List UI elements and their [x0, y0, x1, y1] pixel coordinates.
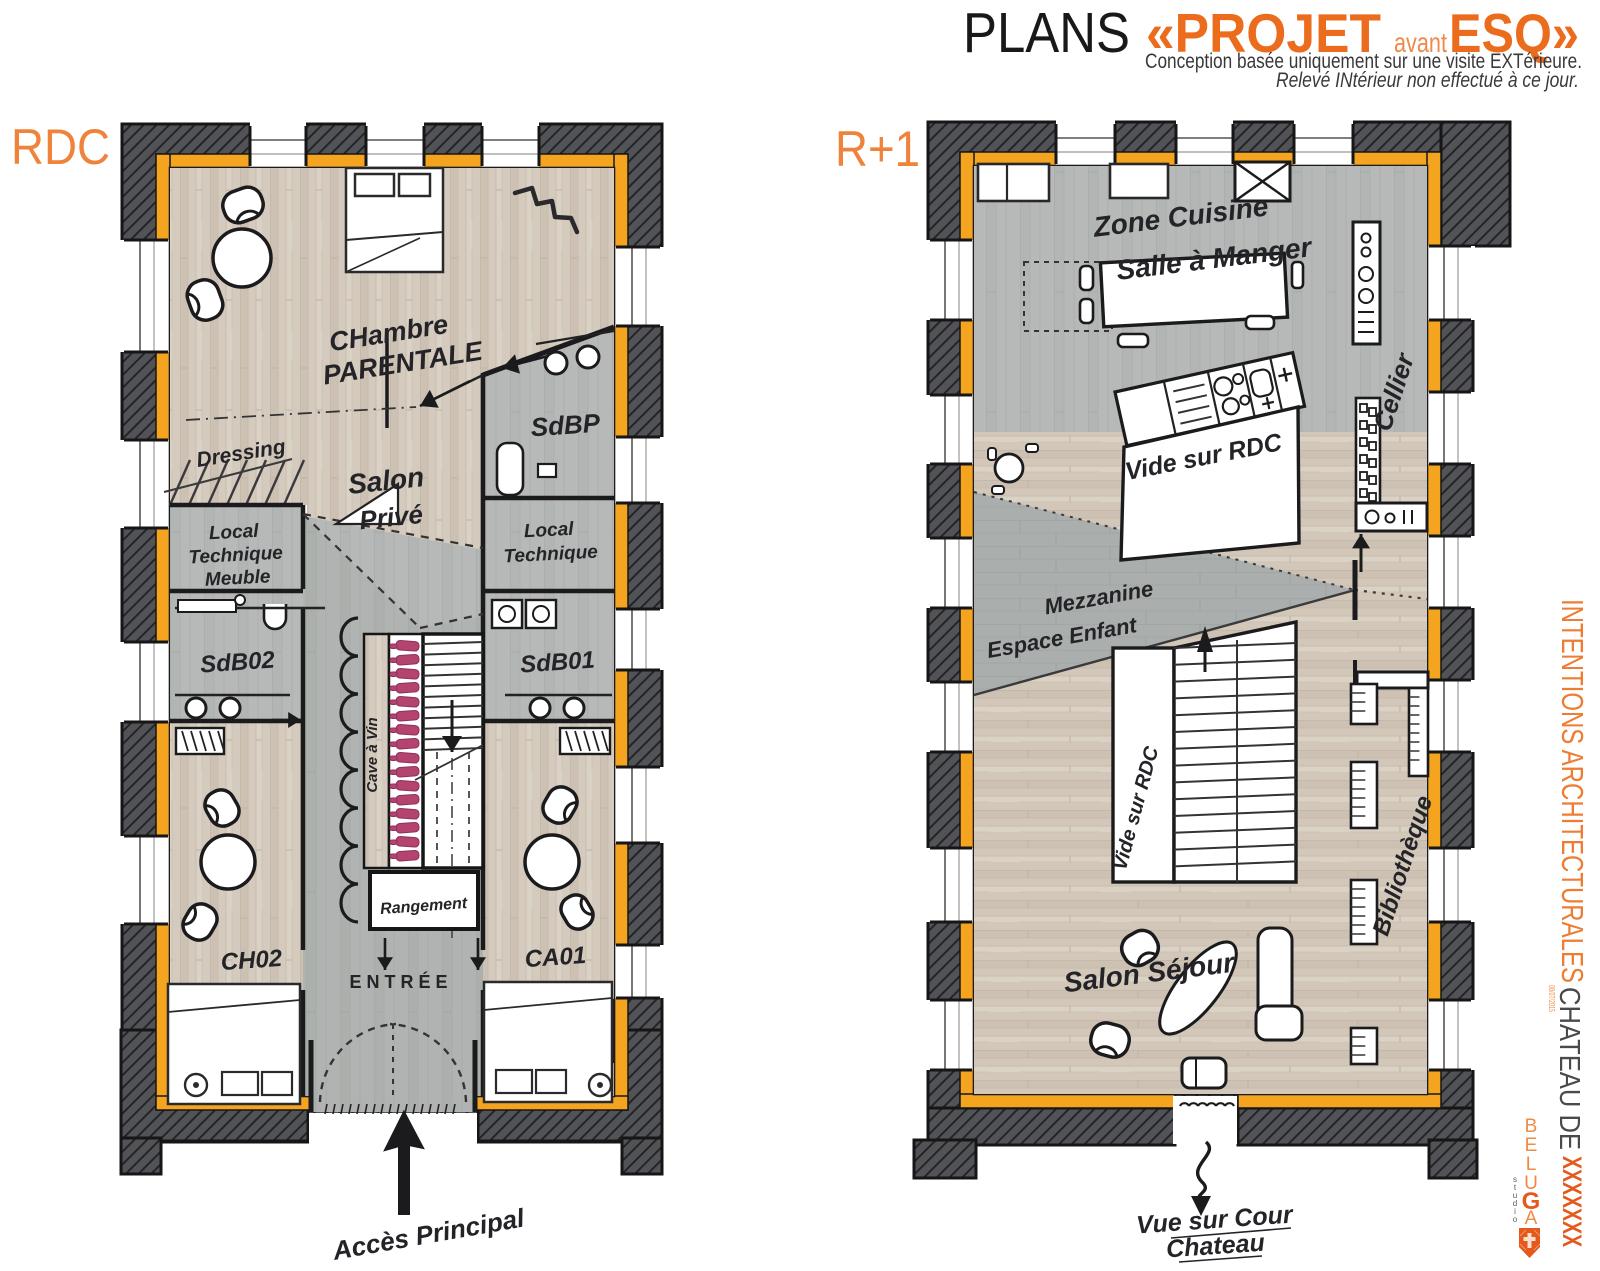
- svg-text:Meuble: Meuble: [204, 566, 271, 590]
- svg-text:R+1: R+1: [835, 121, 920, 177]
- svg-text:Local: Local: [208, 521, 259, 545]
- svg-text:SdBP: SdBP: [530, 408, 602, 443]
- svg-text:CHATEAU DE: CHATEAU DE: [1553, 987, 1585, 1150]
- svg-text:A: A: [1525, 1208, 1538, 1229]
- svg-text:SdB01: SdB01: [519, 646, 595, 678]
- svg-text:Accès Principal: Accès Principal: [329, 1202, 527, 1265]
- svg-text:ENTRÉE: ENTRÉE: [349, 971, 452, 992]
- svg-text:o: o: [1513, 1215, 1518, 1224]
- svg-text:PLANS: PLANS: [963, 1, 1130, 65]
- svg-text:SdB02: SdB02: [199, 646, 276, 678]
- svg-text:INTENTIONS ARCHITECTURALES: INTENTIONS ARCHITECTURALES: [1555, 599, 1590, 983]
- svg-text:L: L: [1526, 1154, 1537, 1175]
- svg-text:RDC: RDC: [11, 119, 110, 175]
- svg-text:Local: Local: [523, 519, 574, 543]
- svg-text:CA01: CA01: [524, 942, 587, 973]
- svg-text:Cave à Vin: Cave à Vin: [364, 717, 381, 792]
- svg-text:E: E: [1525, 1135, 1538, 1156]
- svg-text:XXXXXXX: XXXXXXX: [1557, 1156, 1587, 1247]
- svg-text:CH02: CH02: [220, 945, 284, 976]
- svg-text:Relevé INtérieur non effectué: Relevé INtérieur non effectué à ce jour.: [1276, 69, 1579, 92]
- svg-text:B: B: [1525, 1116, 1538, 1137]
